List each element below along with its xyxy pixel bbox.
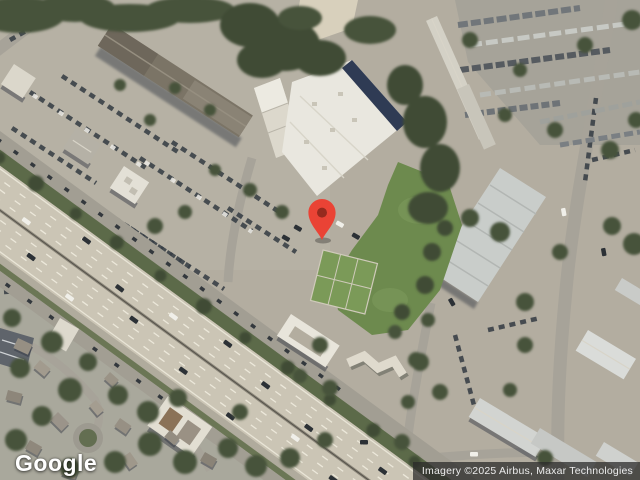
satellite-imagery [0,0,640,480]
imagery-attribution: Imagery ©2025 Airbus, Maxar Technologies [413,462,640,480]
pin-inner-dot [317,208,327,218]
map-canvas[interactable]: Google Imagery ©2025 Airbus, Maxar Techn… [0,0,640,480]
google-logo[interactable]: Google [15,450,97,477]
